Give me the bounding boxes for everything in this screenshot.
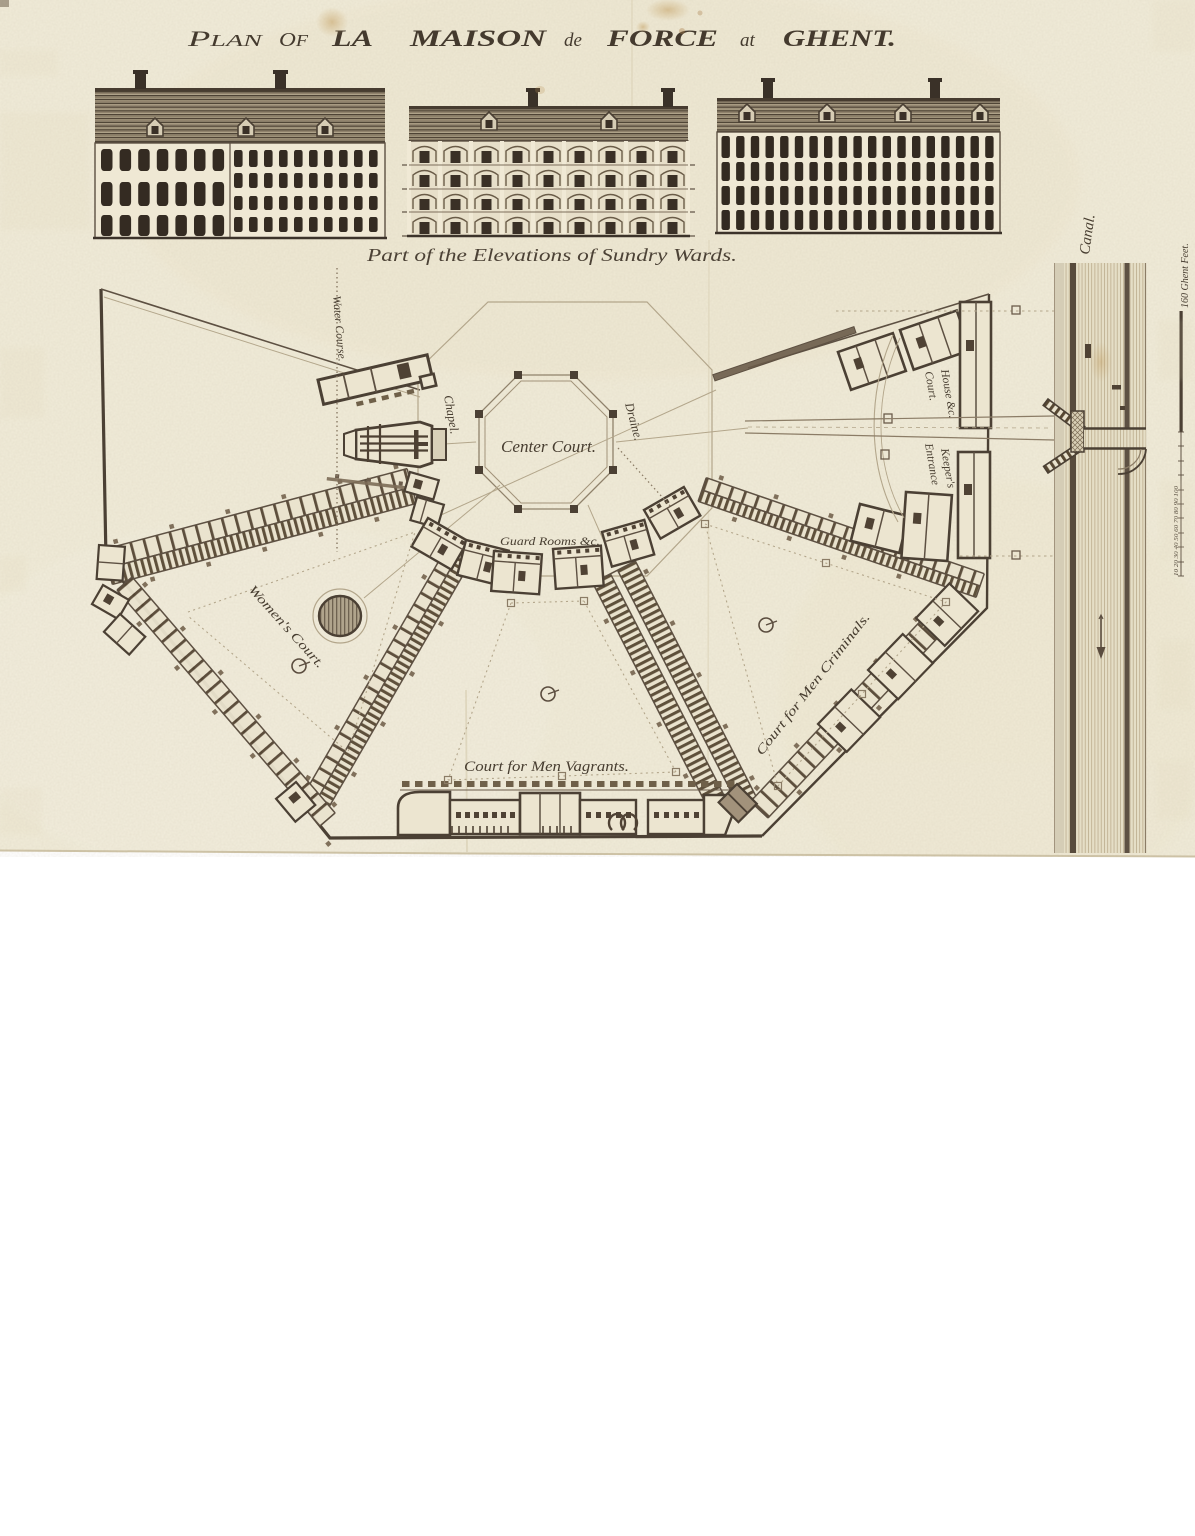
svg-text:Court for Men Vagrants.: Court for Men Vagrants. <box>464 759 629 775</box>
svg-text:GHENT.: GHENT. <box>783 26 896 51</box>
svg-text:OF: OF <box>279 29 309 51</box>
svg-text:Part of the Elevations of Sund: Part of the Elevations of Sundry Wards. <box>366 245 737 265</box>
svg-text:160 Ghent Feet.: 160 Ghent Feet. <box>1180 243 1191 308</box>
svg-text:Center Court.: Center Court. <box>501 437 596 456</box>
svg-text:de: de <box>564 30 582 51</box>
svg-text:MAISON: MAISON <box>409 26 549 51</box>
svg-text:FORCE: FORCE <box>606 26 718 51</box>
svg-text:at: at <box>740 30 756 51</box>
svg-text:Guard Rooms &c.: Guard Rooms &c. <box>500 534 600 548</box>
